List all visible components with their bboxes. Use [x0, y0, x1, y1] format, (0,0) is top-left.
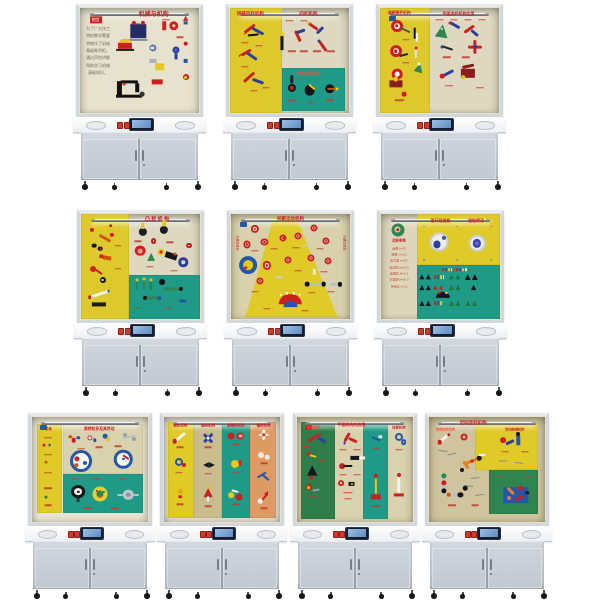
display-cabinet-8: 棘轮机构擒纵机构摩擦轮机构槽轮机构 — [157, 413, 287, 599]
mech-disc — [236, 493, 243, 500]
mech-rect — [281, 35, 284, 51]
door-handle-left[interactable] — [435, 150, 437, 161]
backboard: 空间连杆机构空间四杆机构空间曲柄机构 — [429, 417, 545, 522]
mech-tag — [293, 247, 300, 248]
speaker-grille-left — [435, 530, 454, 539]
cabinet-door-left[interactable] — [84, 345, 139, 385]
caster-wheel — [382, 387, 390, 396]
fluorescent-tube — [41, 422, 138, 425]
door-frame — [384, 345, 496, 385]
mech-disc — [109, 224, 113, 228]
backboard: 平面机构的应用急回机构往复机构 — [297, 417, 413, 522]
mech-tag — [135, 307, 142, 308]
mech-bar — [247, 83, 256, 85]
mech-text-label: 空间连杆机构 — [460, 421, 487, 426]
caster-wheel — [195, 387, 203, 396]
mech-text-label: 急回机构 — [307, 426, 321, 429]
mech-bar — [475, 494, 484, 496]
cabinet-door-left[interactable] — [383, 139, 438, 179]
mech-rect — [437, 275, 439, 279]
mech-tag — [232, 503, 239, 504]
power-button[interactable] — [417, 122, 423, 128]
voice-button[interactable] — [74, 531, 80, 537]
mech-text-label: 平面连杆机构应用 — [442, 12, 474, 16]
mech-rect — [183, 58, 188, 62]
mech-tag — [445, 85, 453, 86]
keyhole — [144, 370, 146, 372]
base-cabinet — [381, 132, 498, 180]
cabinet-door-right[interactable] — [290, 139, 345, 179]
caster-wheel — [194, 181, 202, 190]
mech-disc — [423, 259, 425, 261]
caster-wheel — [378, 592, 384, 599]
mech-disc — [373, 474, 378, 479]
voice-button[interactable] — [206, 531, 212, 537]
mech-tag — [526, 476, 532, 477]
mech-disc — [45, 495, 48, 498]
mech-tag — [241, 42, 248, 43]
mech-disc — [440, 45, 443, 48]
mech-text-label: 前言 — [92, 18, 100, 22]
mech-disc — [135, 245, 146, 256]
power-button[interactable] — [117, 122, 123, 128]
door-frame — [167, 548, 277, 588]
mech-rect — [92, 303, 106, 306]
mech-text-label: 槽轮机构 — [257, 425, 271, 429]
mech-disc — [394, 49, 398, 53]
mech-rect — [442, 268, 444, 272]
mech-disc — [281, 32, 285, 36]
voice-button[interactable] — [275, 328, 281, 334]
mech-tag — [205, 473, 212, 474]
voice-button[interactable] — [471, 531, 477, 537]
mech-text-label: 特制作了机械 — [86, 42, 110, 46]
display-cabinet-1: 机械与机构前言为了广大技工院校教学需要特制作了机械基础陈列柜。通过声控讲解帮助学… — [73, 4, 206, 190]
mech-disc — [93, 486, 108, 501]
fluorescent-tube — [438, 422, 535, 425]
mech-rect — [459, 268, 461, 272]
mech-disc — [447, 433, 450, 436]
speaker-grille-left — [387, 327, 406, 336]
door-handle-left[interactable] — [285, 150, 287, 161]
mech-rect — [456, 268, 458, 272]
caster-wheel — [412, 183, 418, 190]
caster-wheel — [495, 387, 503, 396]
voice-button[interactable] — [274, 122, 280, 128]
display-cabinet-7: 轮系周转轮系及其传动 — [25, 413, 155, 599]
door-handle-left[interactable] — [135, 150, 137, 161]
mech-tag — [135, 241, 142, 242]
mech-disc — [237, 432, 244, 439]
mech-disc — [393, 77, 398, 82]
mech-rect — [451, 268, 453, 272]
lcd-screen[interactable] — [131, 325, 154, 336]
mech-rect — [143, 280, 145, 288]
speaker-grille-left — [170, 530, 189, 539]
mech-disc — [447, 492, 452, 497]
mech-tag — [288, 100, 295, 101]
mech-rect — [437, 301, 439, 305]
mech-disc-hub — [184, 76, 187, 79]
door-handle-left[interactable] — [286, 356, 288, 367]
door-handle-right[interactable] — [93, 559, 95, 570]
cabinet-door-left[interactable] — [35, 548, 89, 588]
mech-ring — [239, 257, 257, 275]
voice-button[interactable] — [425, 328, 431, 334]
keyhole — [293, 164, 295, 166]
power-button[interactable] — [267, 122, 273, 128]
mech-tag — [270, 248, 277, 249]
display-cabinet-3: 曲柄摇杆机构平面连杆机构应用 — [373, 4, 506, 190]
mech-tag — [472, 505, 479, 506]
backboard: 棘轮机构擒纵机构摩擦轮机构槽轮机构 — [164, 417, 280, 522]
lcd-screen[interactable] — [280, 119, 303, 130]
power-button[interactable] — [418, 328, 424, 334]
mech-text-label: 内槽轮机构 — [342, 236, 345, 251]
mech-tag — [205, 447, 212, 448]
mech-rect — [149, 58, 156, 62]
mech-tag — [44, 437, 52, 438]
mech-disc — [173, 252, 176, 255]
mech-text-label: 为了广大技工 — [86, 27, 110, 31]
caster-wheel — [510, 592, 516, 599]
control-shelf — [223, 117, 356, 133]
mech-rect — [440, 301, 442, 305]
mech-disc — [92, 243, 97, 248]
power-button[interactable] — [333, 531, 339, 537]
mech-rect — [415, 49, 417, 57]
mech-tag — [522, 451, 529, 452]
power-button[interactable] — [118, 328, 124, 334]
mech-disc — [149, 44, 156, 51]
mech-disc — [207, 486, 210, 489]
mech-tag — [317, 248, 324, 249]
display-case: 渐开线齿轮齿轮传动齿轮参数齿数 z=25模数 m=2.5压力角 α=20°齿顶高… — [377, 210, 503, 323]
base-cabinet — [231, 132, 348, 180]
mech-disc-hub — [178, 489, 183, 494]
power-button[interactable] — [268, 328, 274, 334]
mech-text-label: 周转轮系及其传动 — [84, 428, 114, 432]
mech-text-label: 双移动副机构 — [296, 72, 320, 76]
door-frame — [83, 139, 195, 179]
backboard: 凸 轮 机 构 — [81, 214, 199, 319]
caster-wheel — [344, 181, 352, 190]
speaker-grille-left — [87, 327, 106, 336]
mech-text-label: 间歇运动机构 — [277, 217, 304, 222]
lcd-screen[interactable] — [346, 528, 368, 539]
base-cabinet — [81, 132, 198, 180]
mech-disc — [150, 279, 153, 282]
cabinet-door-left[interactable] — [234, 345, 289, 385]
mech-tag — [115, 268, 121, 269]
mech-tag — [403, 62, 410, 63]
door-handle-right[interactable] — [225, 559, 227, 570]
door-handle-right[interactable] — [490, 559, 492, 570]
backboard: 轮系周转轮系及其传动 — [32, 417, 148, 522]
voice-button[interactable] — [424, 122, 430, 128]
door-frame — [84, 345, 196, 385]
speaker-grille-left — [237, 327, 256, 336]
control-shelf — [373, 117, 506, 133]
mech-text-label: 擒纵机构 — [201, 425, 215, 429]
mech-tag — [45, 505, 52, 506]
mech-tag — [250, 90, 257, 91]
mech-tag — [326, 100, 333, 101]
mech-tag — [93, 478, 100, 479]
mech-tag — [77, 448, 84, 449]
door-handle-left[interactable] — [350, 559, 352, 570]
mech-ring — [151, 238, 157, 244]
caster-wheel — [275, 590, 283, 599]
mech-disc — [183, 41, 188, 46]
lcd-screen[interactable] — [81, 528, 103, 539]
mech-rect — [183, 21, 188, 24]
mech-disc — [490, 226, 492, 228]
door-handle-right[interactable] — [143, 356, 145, 367]
door-handle-left[interactable] — [217, 559, 219, 570]
display-case: 间歇运动机构外槽轮机构内槽轮机构 — [227, 210, 353, 323]
mech-tag — [479, 19, 486, 20]
lcd-screen[interactable] — [281, 325, 304, 336]
door-frame — [383, 139, 495, 179]
mech-disc — [471, 460, 474, 463]
display-cabinet-9: 平面机构的应用急回机构往复机构 — [290, 413, 420, 599]
mech-tag — [232, 472, 239, 473]
caster-wheel — [245, 592, 251, 599]
mech-rect — [443, 275, 445, 279]
cabinet-door-right[interactable] — [141, 345, 196, 385]
backboard: 机械与机构前言为了广大技工院校教学需要特制作了机械基础陈列柜。通过声控讲解帮助学… — [80, 8, 198, 113]
control-shelf — [25, 526, 155, 542]
mech-text-label: 铰链四杆机构 — [237, 12, 264, 17]
backboard: 曲柄摇杆机构平面连杆机构应用 — [380, 8, 498, 113]
mech-disc — [306, 485, 312, 491]
power-button[interactable] — [465, 531, 471, 537]
lcd-screen[interactable] — [430, 119, 453, 130]
speaker-grille-right — [125, 530, 144, 539]
mech-rect — [152, 79, 163, 84]
mech-disc — [42, 444, 45, 447]
display-case: 空间连杆机构空间四杆机构空间曲柄机构 — [425, 413, 549, 526]
mech-disc — [473, 45, 477, 49]
mech-rect — [445, 268, 447, 272]
keyhole — [143, 164, 145, 166]
mech-rect — [448, 268, 450, 272]
mech-disc — [207, 437, 210, 440]
base-cabinet — [382, 338, 499, 386]
mech-text-label: 院校教学需要 — [86, 34, 110, 38]
mech-tag — [262, 87, 269, 88]
door-handle-right[interactable] — [358, 559, 360, 570]
caster-wheel — [313, 183, 319, 190]
door-handle-right[interactable] — [442, 150, 444, 161]
cabinet-door-left[interactable] — [83, 139, 138, 179]
mech-tag — [177, 503, 184, 504]
lcd-screen[interactable] — [478, 528, 500, 539]
mech-text-label: 分度圆 d=62.5 — [390, 279, 409, 282]
mech-tag — [176, 472, 183, 473]
cabinet-door-left[interactable] — [233, 139, 288, 179]
mech-disc — [48, 444, 51, 447]
mech-tag — [96, 447, 103, 448]
cabinet-door-right[interactable] — [140, 139, 195, 179]
power-button[interactable] — [68, 531, 74, 537]
mech-bar — [301, 245, 308, 247]
mech-tag — [70, 478, 77, 479]
mech-disc — [456, 259, 458, 261]
mech-disc — [183, 74, 189, 80]
mech-ring — [186, 243, 192, 249]
mech-text-label: 棘轮机构 — [173, 425, 187, 429]
mech-disc — [107, 289, 110, 292]
mech-tag — [84, 508, 92, 509]
mech-disc — [157, 248, 164, 255]
mech-tag — [241, 66, 248, 67]
power-button[interactable] — [200, 531, 206, 537]
mech-disc — [439, 74, 444, 79]
mech-disc — [397, 473, 401, 477]
mech-text-label: 齿轮传动 — [468, 219, 484, 223]
backboard-panel — [417, 265, 500, 319]
mech-tag — [114, 446, 121, 447]
lcd-screen[interactable] — [431, 325, 454, 336]
mech-text-label: 齿顶高 ha=2.5 — [390, 266, 409, 269]
mech-text-label: 空间四杆机构 — [436, 428, 455, 431]
mech-text-label: 平面机构的应用 — [338, 423, 366, 427]
cabinet-door-left[interactable] — [167, 548, 221, 588]
mech-tag — [448, 505, 456, 506]
cabinet-door-right[interactable] — [440, 139, 495, 179]
lcd-screen[interactable] — [130, 119, 153, 130]
display-case: 平面机构的应用急回机构往复机构 — [293, 413, 417, 526]
mech-tag — [288, 50, 296, 51]
voice-button[interactable] — [339, 531, 345, 537]
mech-text-label: 空间曲柄机构 — [505, 428, 524, 431]
cabinet-door-left[interactable] — [300, 548, 354, 588]
mech-tag — [372, 448, 379, 449]
caster-wheel — [164, 389, 170, 396]
door-handle-right[interactable] — [142, 150, 144, 161]
cabinet-door-left[interactable] — [384, 345, 439, 385]
cabinet-door-right[interactable] — [223, 548, 277, 588]
base-cabinet — [298, 541, 412, 589]
mech-tag — [301, 310, 308, 311]
speaker-grille-left — [386, 121, 405, 130]
door-frame — [234, 345, 346, 385]
mech-disc — [338, 480, 344, 486]
mech-tag — [304, 446, 310, 447]
mech-disc-hub — [290, 86, 294, 90]
door-handle-right[interactable] — [292, 150, 294, 161]
mech-tag — [300, 20, 307, 21]
mech-disc — [343, 442, 346, 445]
mech-disc-hub — [89, 437, 91, 439]
mech-rect — [371, 494, 381, 499]
voice-button[interactable] — [125, 328, 131, 334]
door-handle-left[interactable] — [436, 356, 438, 367]
cabinet-door-right[interactable] — [441, 345, 496, 385]
mech-tag — [395, 449, 402, 450]
mech-disc — [45, 461, 48, 464]
mech-disc — [518, 486, 523, 491]
mech-disc — [100, 254, 104, 258]
caster-wheel — [460, 592, 466, 599]
display-case: 机械与机构前言为了广大技工院校教学需要特制作了机械基础陈列柜。通过声控讲解帮助学… — [76, 4, 202, 117]
mech-tag — [327, 50, 335, 51]
mech-text-label: 齿根高 hf=3.1 — [390, 272, 408, 275]
mech-disc — [414, 46, 417, 49]
door-handle-left[interactable] — [136, 356, 138, 367]
cabinet-door-left[interactable] — [432, 548, 486, 588]
mech-rect — [117, 81, 121, 95]
mech-disc — [159, 279, 165, 285]
backboard: 渐开线齿轮齿轮传动齿轮参数齿数 z=25模数 m=2.5压力角 α=20°齿顶高… — [381, 214, 499, 319]
mech-text-label: 四杆机构 — [299, 12, 317, 17]
speaker-grille-right — [325, 121, 344, 130]
cabinet-door-right[interactable] — [488, 548, 542, 588]
mech-disc — [423, 226, 425, 228]
mech-tag — [205, 506, 212, 507]
cabinet-door-right[interactable] — [291, 345, 346, 385]
mech-disc — [228, 432, 235, 439]
display-cabinet-2: 铰链四杆机构四杆机构双移动副机构 — [223, 4, 356, 190]
caster-wheel — [63, 592, 69, 599]
caster-wheel — [112, 183, 118, 190]
voice-button[interactable] — [124, 122, 130, 128]
mech-bar — [438, 449, 447, 451]
lcd-screen[interactable] — [213, 528, 235, 539]
mech-rect — [155, 63, 164, 70]
display-case: 凸 轮 机 构 — [77, 210, 203, 323]
mech-disc — [490, 259, 492, 261]
mech-disc-hub — [475, 242, 479, 246]
mech-tag — [255, 45, 262, 46]
mech-disc-hub — [126, 492, 131, 497]
mech-text-label: 轮系 — [45, 428, 52, 432]
mech-ring — [401, 439, 407, 445]
mech-text-label: 帮助学习机械 — [86, 64, 110, 68]
mech-text-label: 外槽轮机构 — [236, 236, 239, 251]
mech-tag — [146, 266, 153, 267]
caster-wheel — [262, 183, 268, 190]
mech-rect — [434, 275, 436, 279]
door-handle-right[interactable] — [443, 356, 445, 367]
caster-wheel — [345, 387, 353, 396]
mech-disc — [449, 21, 452, 24]
door-handle-left[interactable] — [85, 559, 87, 570]
cabinet-door-right[interactable] — [91, 548, 145, 588]
mech-disc — [305, 282, 310, 287]
caster-wheel — [195, 592, 201, 599]
mech-disc — [402, 92, 407, 97]
mech-bar — [312, 488, 319, 491]
mech-tag — [403, 39, 410, 40]
mech-disc-hub — [307, 486, 310, 489]
door-frame — [432, 548, 542, 588]
speaker-grille-left — [38, 530, 57, 539]
mech-bar — [471, 29, 480, 37]
door-handle-left[interactable] — [482, 559, 484, 570]
mech-disc — [72, 438, 77, 443]
door-handle-right[interactable] — [293, 356, 295, 367]
mech-text-label: 机械与机构 — [139, 12, 169, 18]
mech-tag — [476, 87, 484, 88]
mech-rect — [465, 268, 467, 272]
base-cabinet — [232, 338, 349, 386]
cabinet-door-right[interactable] — [356, 548, 410, 588]
mech-tag — [502, 451, 509, 452]
mech-rect — [129, 38, 148, 40]
